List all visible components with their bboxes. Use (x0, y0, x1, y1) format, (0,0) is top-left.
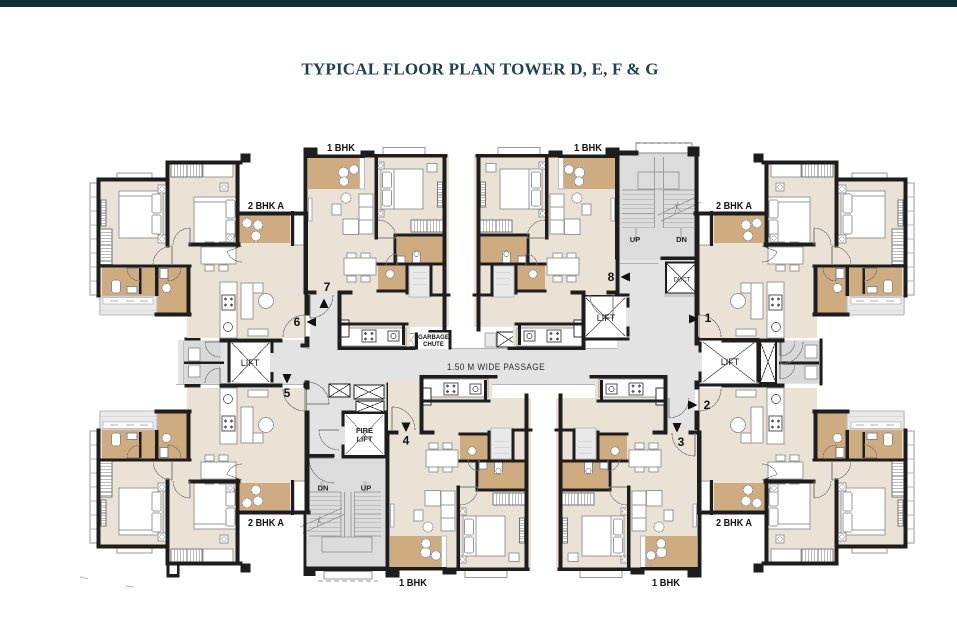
svg-text:LIFT: LIFT (597, 313, 616, 323)
svg-text:8: 8 (608, 270, 615, 284)
svg-text:7: 7 (324, 280, 331, 294)
svg-text:2: 2 (704, 398, 711, 412)
svg-text:2 BHK A: 2 BHK A (716, 200, 752, 212)
svg-text:1 BHK: 1 BHK (399, 577, 427, 589)
svg-text:2 BHK A: 2 BHK A (248, 200, 284, 212)
svg-text:2 BHK A: 2 BHK A (716, 517, 752, 529)
svg-text:1 BHK: 1 BHK (574, 142, 602, 154)
svg-text:LIFT: LIFT (721, 357, 740, 367)
svg-text:1: 1 (705, 311, 712, 325)
svg-text:TYPICAL FLOOR PLAN TOWER D, E,: TYPICAL FLOOR PLAN TOWER D, E, F & G (301, 60, 658, 79)
svg-text:5: 5 (284, 386, 291, 400)
svg-text:6: 6 (294, 315, 301, 329)
svg-text:1 BHK: 1 BHK (327, 142, 355, 154)
svg-text:DN: DN (318, 484, 329, 493)
svg-text:2 BHK A: 2 BHK A (248, 517, 284, 529)
svg-text:LIFT: LIFT (241, 358, 260, 368)
svg-text:4: 4 (403, 434, 410, 448)
svg-text:LIFT: LIFT (357, 435, 373, 444)
svg-text:1.50 M WIDE PASSAGE: 1.50 M WIDE PASSAGE (447, 362, 545, 373)
svg-text:DN: DN (676, 235, 687, 244)
svg-text:DUCT: DUCT (674, 278, 691, 284)
svg-text:UP: UP (630, 235, 640, 244)
svg-text:1 BHK: 1 BHK (652, 577, 680, 589)
svg-text:GARBAGE: GARBAGE (418, 335, 449, 341)
svg-text:3: 3 (678, 435, 685, 449)
svg-text:CHUTE: CHUTE (423, 342, 444, 348)
svg-text:UP: UP (361, 484, 371, 493)
